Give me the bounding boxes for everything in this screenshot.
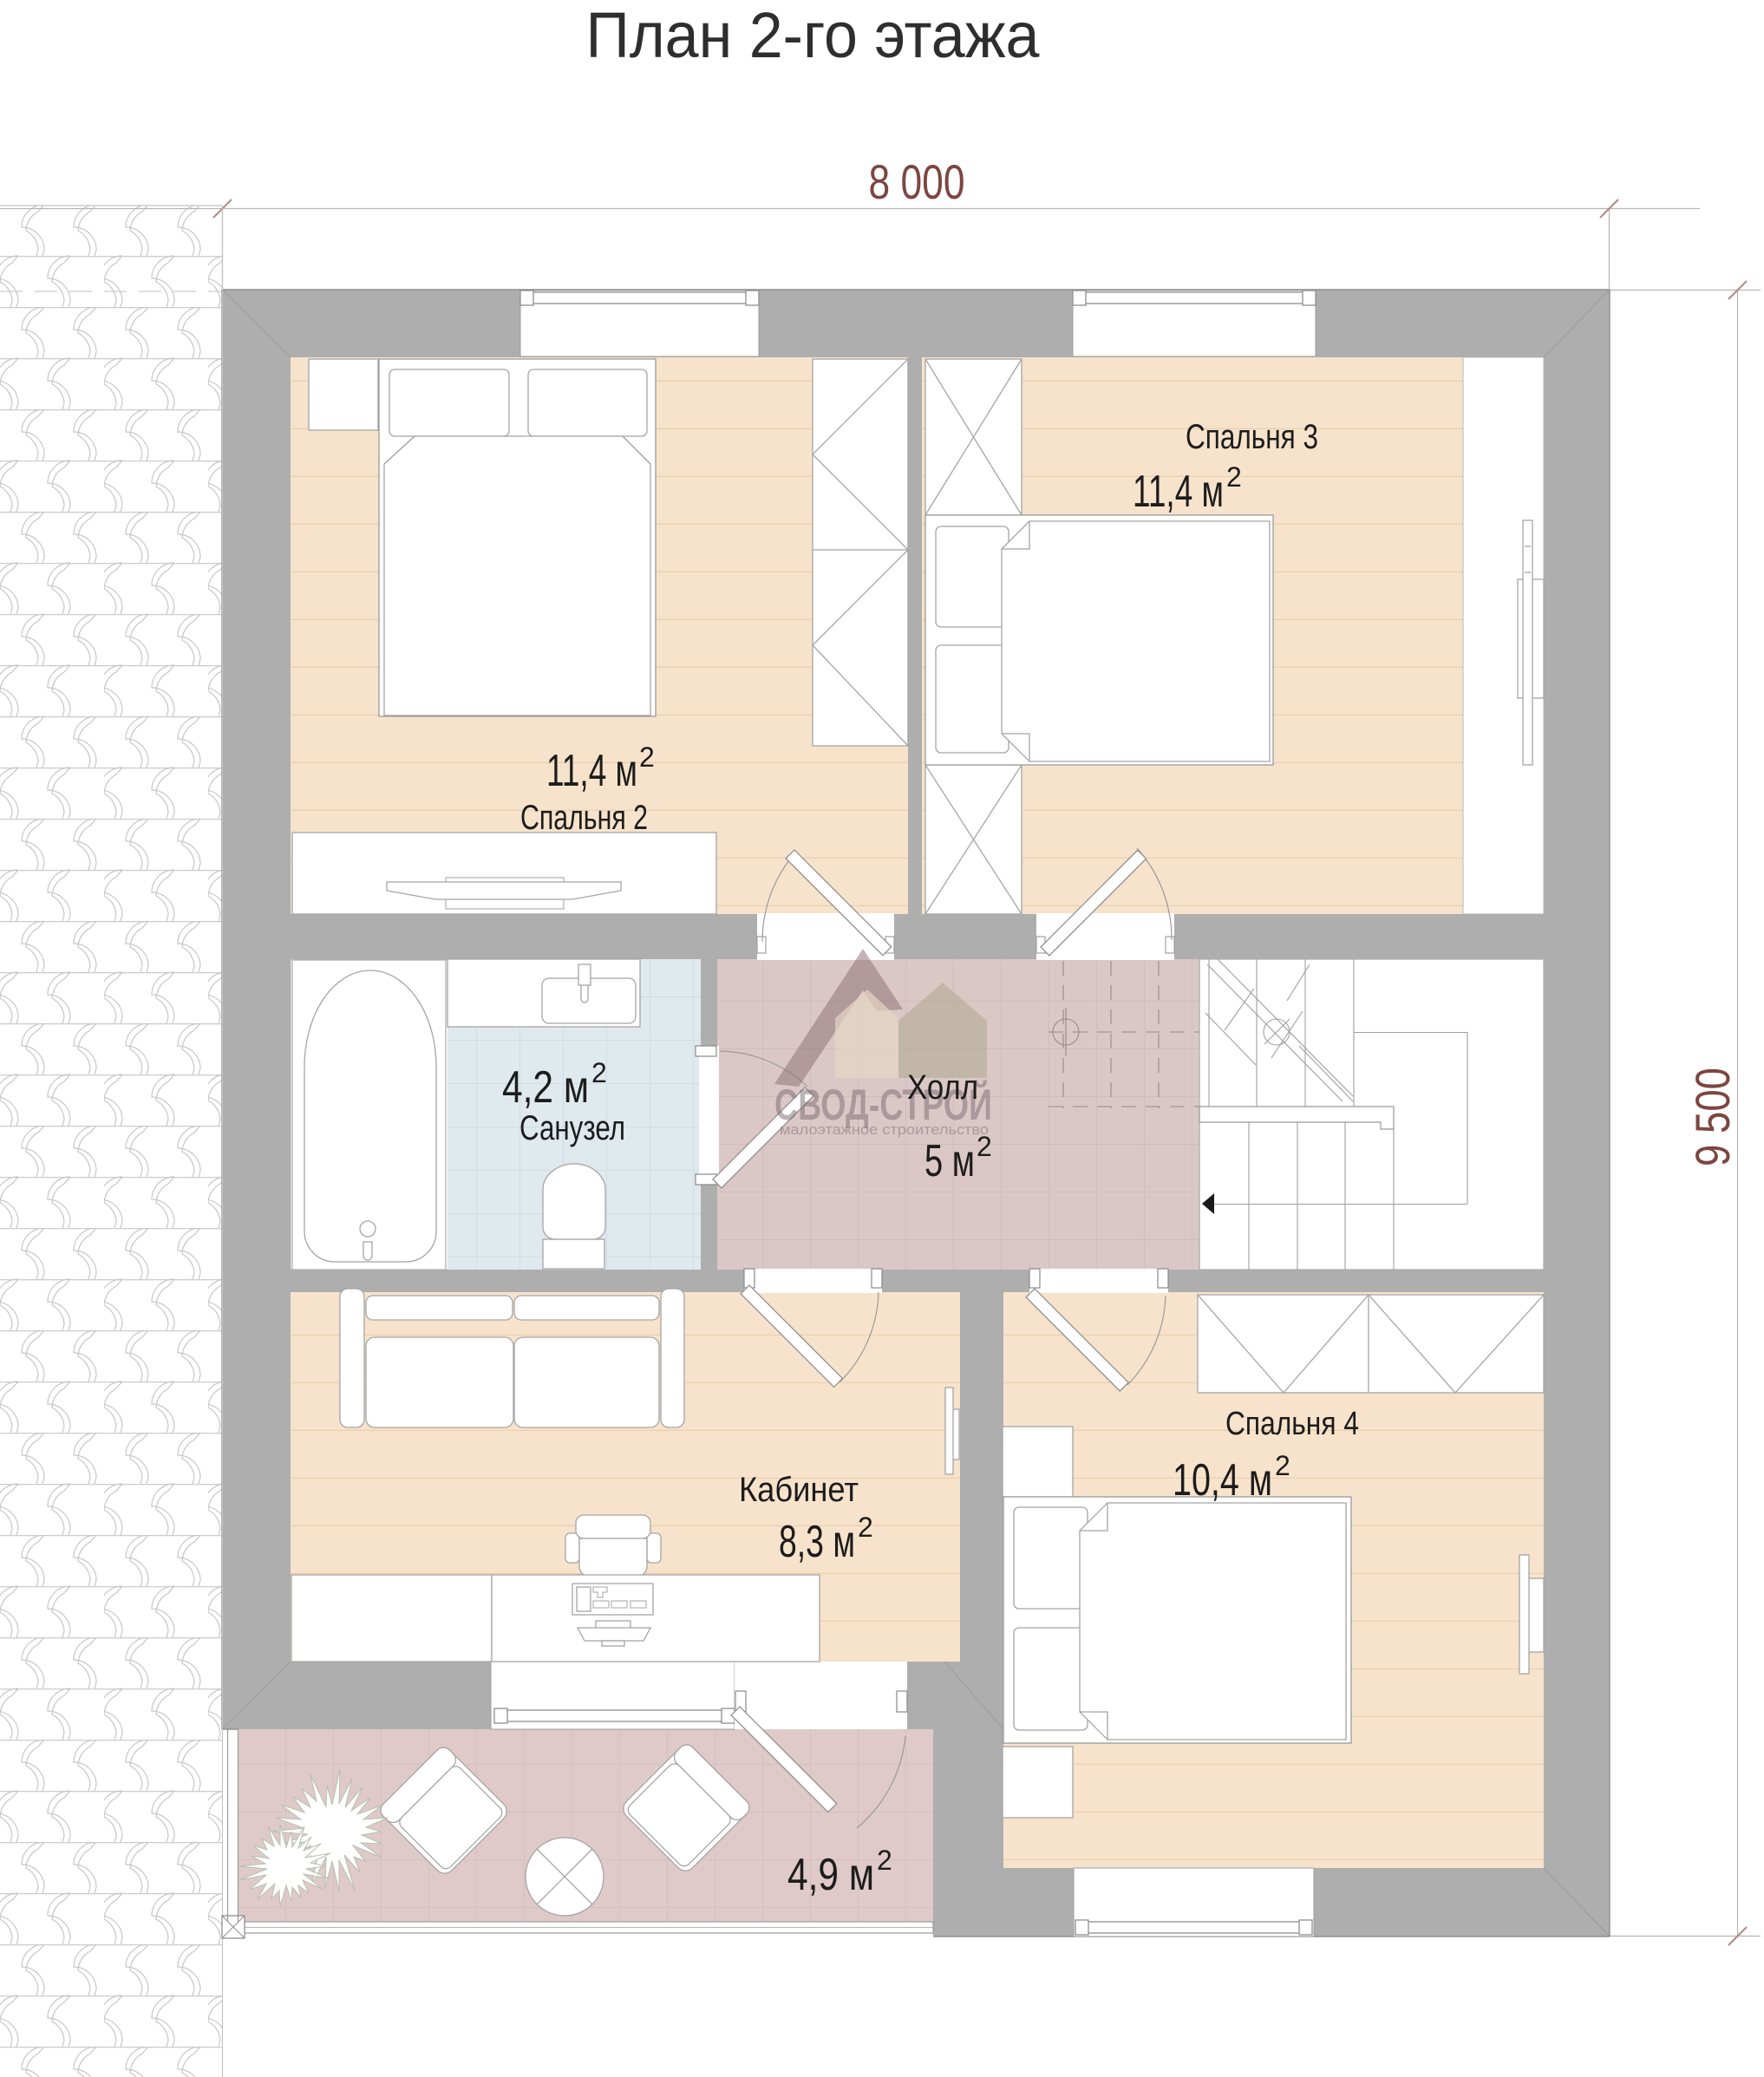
svg-text:10,4 м: 10,4 м — [1173, 1455, 1272, 1505]
svg-text:2: 2 — [877, 1845, 892, 1876]
svg-text:2: 2 — [858, 1512, 873, 1543]
svg-text:План 2-го этажа: План 2-го этажа — [586, 0, 1041, 71]
svg-text:Холл: Холл — [907, 1068, 978, 1107]
svg-text:9 500: 9 500 — [1685, 1068, 1740, 1166]
svg-text:Кабинет: Кабинет — [739, 1471, 859, 1509]
svg-text:2: 2 — [1275, 1450, 1290, 1481]
svg-text:2: 2 — [977, 1131, 992, 1162]
svg-text:11,4 м: 11,4 м — [546, 746, 637, 796]
svg-text:2: 2 — [591, 1057, 607, 1088]
svg-text:Санузел: Санузел — [519, 1109, 625, 1147]
svg-text:4,2 м: 4,2 м — [502, 1062, 589, 1113]
svg-text:8 000: 8 000 — [869, 154, 965, 209]
svg-text:2: 2 — [639, 741, 655, 773]
svg-text:5 м: 5 м — [924, 1136, 975, 1186]
svg-text:2: 2 — [1226, 461, 1242, 493]
svg-text:11,4 м: 11,4 м — [1133, 467, 1224, 517]
svg-text:Спальня 4: Спальня 4 — [1225, 1406, 1359, 1442]
svg-text:Спальня 2: Спальня 2 — [520, 799, 648, 837]
svg-text:4,9 м: 4,9 м — [787, 1850, 874, 1900]
svg-text:Спальня 3: Спальня 3 — [1186, 418, 1318, 456]
svg-text:8,3 м: 8,3 м — [779, 1517, 855, 1567]
